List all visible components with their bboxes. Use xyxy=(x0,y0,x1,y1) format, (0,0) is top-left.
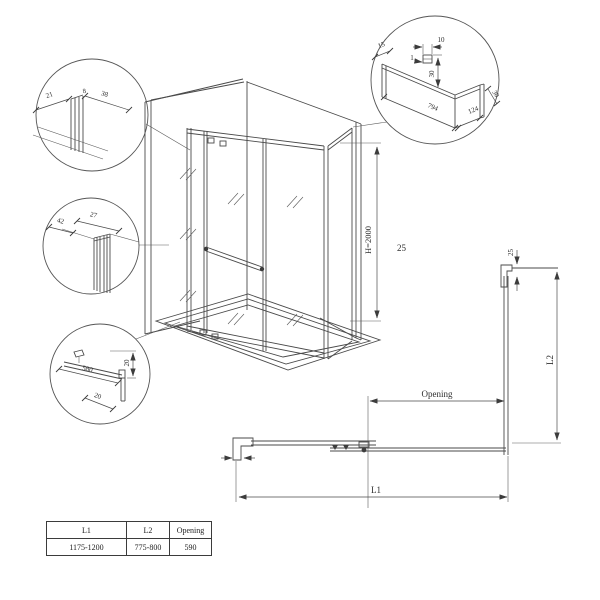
detail-circle-towel-bar: 580 20 20 xyxy=(50,324,150,424)
roller-bracket xyxy=(220,141,226,146)
glass-hatch-marks xyxy=(180,168,303,326)
dim-27: 27 xyxy=(89,210,98,220)
sliding-door xyxy=(200,131,266,351)
roller-bracket xyxy=(208,138,214,143)
size-table: L1 L2 Opening 1175-1200 775-800 590 xyxy=(46,521,212,556)
dim-1: 1 xyxy=(410,54,414,62)
glass-frame xyxy=(187,128,352,359)
leader-lines xyxy=(136,122,387,339)
plan-l1-label: L1 xyxy=(371,485,381,495)
dim-42: 42 xyxy=(56,216,65,226)
detail-circle-glass-panel: 10 1 30 15 794 124 30 xyxy=(371,16,501,144)
table-header-opening: Opening xyxy=(170,522,212,539)
plan-wall-profile xyxy=(501,265,512,287)
plan-opening-label: Opening xyxy=(422,389,453,399)
height-label: H=2000 xyxy=(363,226,373,254)
dim-21: 21 xyxy=(45,90,55,100)
towel-bar xyxy=(204,247,264,271)
dim-20-vertical: 20 xyxy=(123,359,131,367)
note-25: 25 xyxy=(397,243,407,253)
dim-30-drop: 30 xyxy=(428,70,436,78)
table-value-opening: 590 xyxy=(170,539,212,556)
dim-30-end: 30 xyxy=(490,89,501,100)
table-header-l1: L1 xyxy=(47,522,127,539)
dim-794: 794 xyxy=(426,101,439,113)
table-header-row: L1 L2 Opening xyxy=(47,522,212,539)
left-wall xyxy=(145,79,247,334)
detail-circle-jamb-profile: 27 42 xyxy=(43,198,139,294)
technical-drawing-page: H=2000 25 21 8 38 27 42 xyxy=(0,0,600,600)
dim-20-depth: 20 xyxy=(93,391,103,401)
dim-38: 38 xyxy=(100,89,110,99)
plan-l2-label: L2 xyxy=(545,355,555,365)
dim-10: 10 xyxy=(438,36,446,44)
table-value-row: 1175-1200 775-800 590 xyxy=(47,539,212,556)
plan-view: 25 L2 Opening L1 xyxy=(221,249,561,509)
hinge-mark xyxy=(332,445,338,450)
plan-dim-25: 25 xyxy=(507,249,515,257)
dim-124: 124 xyxy=(467,104,480,116)
drawing-svg: H=2000 25 21 8 38 27 42 xyxy=(0,0,600,600)
height-dimension: H=2000 xyxy=(340,143,381,321)
plan-corner-profile xyxy=(233,438,253,460)
door-handle-plan xyxy=(359,442,369,447)
dim-15: 15 xyxy=(377,40,387,50)
isometric-enclosure: H=2000 25 xyxy=(145,79,407,370)
right-wall xyxy=(247,82,361,340)
hinge-mark xyxy=(343,445,349,450)
detail-circle-wall-profile: 21 8 38 xyxy=(33,59,148,171)
table-header-l2: L2 xyxy=(127,522,170,539)
table-value-l2: 775-800 xyxy=(127,539,170,556)
dim-8: 8 xyxy=(82,88,87,96)
table-value-l1: 1175-1200 xyxy=(47,539,127,556)
shower-tray xyxy=(156,294,380,370)
